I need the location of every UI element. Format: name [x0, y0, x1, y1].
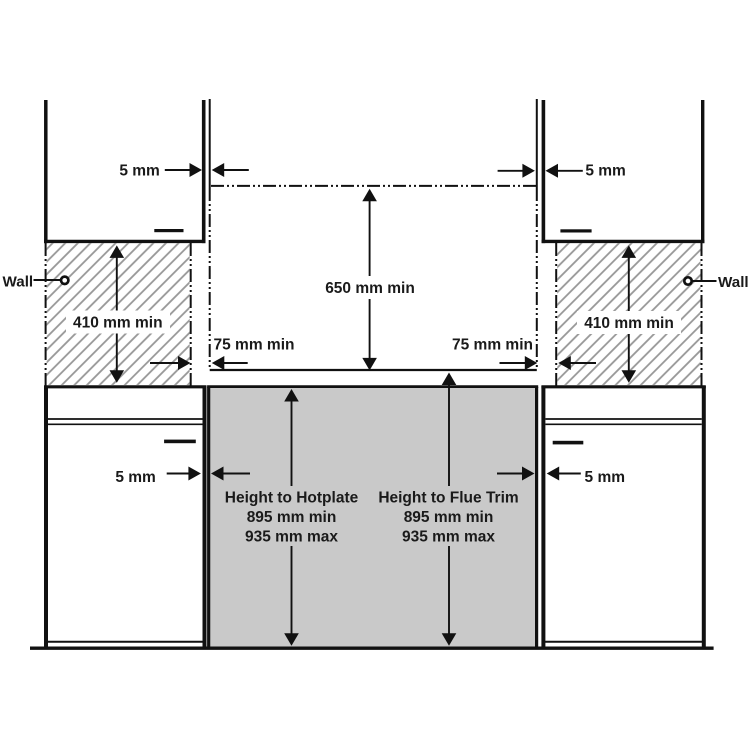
svg-text:Height to Flue Trim: Height to Flue Trim — [378, 489, 518, 506]
svg-text:5 mm: 5 mm — [115, 469, 156, 486]
svg-text:5 mm: 5 mm — [119, 163, 160, 180]
svg-text:895 mm min: 895 mm min — [247, 509, 337, 526]
svg-text:410 mm min: 410 mm min — [73, 315, 163, 332]
svg-text:Height to Hotplate: Height to Hotplate — [225, 489, 359, 506]
svg-text:650 mm min: 650 mm min — [325, 280, 415, 297]
svg-text:75 mm min: 75 mm min — [214, 337, 295, 354]
svg-text:75 mm min: 75 mm min — [452, 337, 533, 354]
svg-text:935 mm max: 935 mm max — [245, 528, 338, 545]
svg-text:Wall: Wall — [3, 274, 34, 291]
svg-text:895 mm min: 895 mm min — [404, 509, 494, 526]
svg-text:5 mm: 5 mm — [585, 469, 626, 486]
svg-text:935 mm max: 935 mm max — [402, 528, 495, 545]
svg-text:410 mm min: 410 mm min — [584, 315, 674, 332]
svg-text:Wall: Wall — [718, 274, 749, 291]
svg-text:5 mm: 5 mm — [585, 163, 626, 180]
